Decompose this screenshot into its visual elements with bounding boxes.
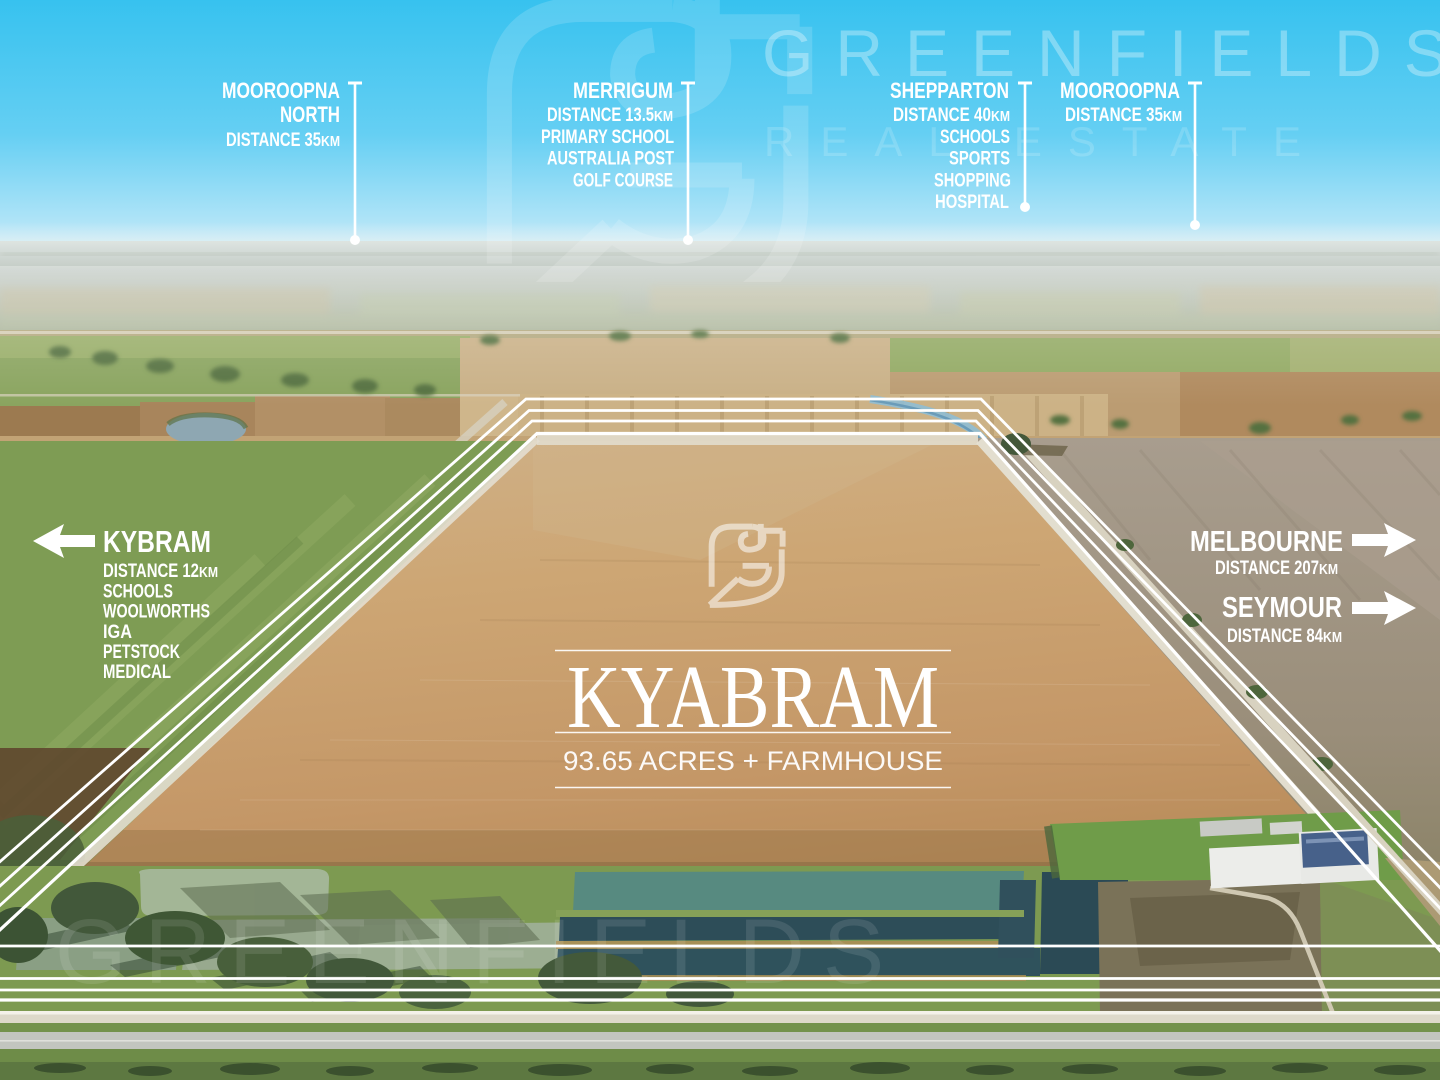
- svg-text:MERRIGUM: MERRIGUM: [573, 78, 673, 103]
- svg-text:MOOROOPNA: MOOROOPNA: [222, 78, 340, 103]
- svg-text:GREENFIELDS: GREENFIELDS: [55, 901, 902, 1003]
- svg-text:GOLF COURSE: GOLF COURSE: [573, 170, 673, 192]
- svg-text:SCHOOLS: SCHOOLS: [103, 581, 173, 603]
- svg-text:HOSPITAL: HOSPITAL: [935, 191, 1009, 213]
- svg-text:PRIMARY SCHOOL: PRIMARY SCHOOL: [541, 126, 674, 148]
- svg-text:DISTANCE 84KM: DISTANCE 84KM: [1227, 625, 1342, 647]
- svg-text:KYABRAM: KYABRAM: [567, 648, 939, 747]
- svg-text:MELBOURNE: MELBOURNE: [1190, 526, 1343, 558]
- svg-text:SPORTS: SPORTS: [949, 148, 1010, 170]
- svg-text:SHEPPARTON: SHEPPARTON: [890, 78, 1009, 103]
- svg-text:DISTANCE 12KM: DISTANCE 12KM: [103, 560, 218, 582]
- svg-text:WOOLWORTHS: WOOLWORTHS: [103, 601, 210, 623]
- svg-text:SHOPPING: SHOPPING: [934, 170, 1011, 192]
- svg-text:SCHOOLS: SCHOOLS: [940, 126, 1010, 148]
- svg-text:NORTH: NORTH: [280, 102, 340, 127]
- svg-text:MEDICAL: MEDICAL: [103, 661, 171, 683]
- svg-text:IGA: IGA: [103, 621, 132, 643]
- svg-text:DISTANCE 207KM: DISTANCE 207KM: [1215, 557, 1338, 579]
- svg-text:DISTANCE 35KM: DISTANCE 35KM: [226, 129, 340, 151]
- svg-text:DISTANCE 35KM: DISTANCE 35KM: [1065, 104, 1182, 126]
- svg-text:REAL ESTATE: REAL ESTATE: [764, 118, 1327, 165]
- svg-text:DISTANCE 13.5KM: DISTANCE 13.5KM: [547, 104, 673, 126]
- svg-text:93.65 ACRES + FARMHOUSE: 93.65 ACRES + FARMHOUSE: [563, 746, 943, 776]
- svg-text:AUSTRALIA POST: AUSTRALIA POST: [547, 148, 674, 170]
- svg-text:KYBRAM: KYBRAM: [103, 524, 211, 559]
- svg-text:SEYMOUR: SEYMOUR: [1222, 592, 1342, 624]
- svg-text:MOOROOPNA: MOOROOPNA: [1060, 78, 1180, 103]
- svg-text:DISTANCE 40KM: DISTANCE 40KM: [893, 104, 1010, 126]
- svg-text:PETSTOCK: PETSTOCK: [103, 641, 180, 663]
